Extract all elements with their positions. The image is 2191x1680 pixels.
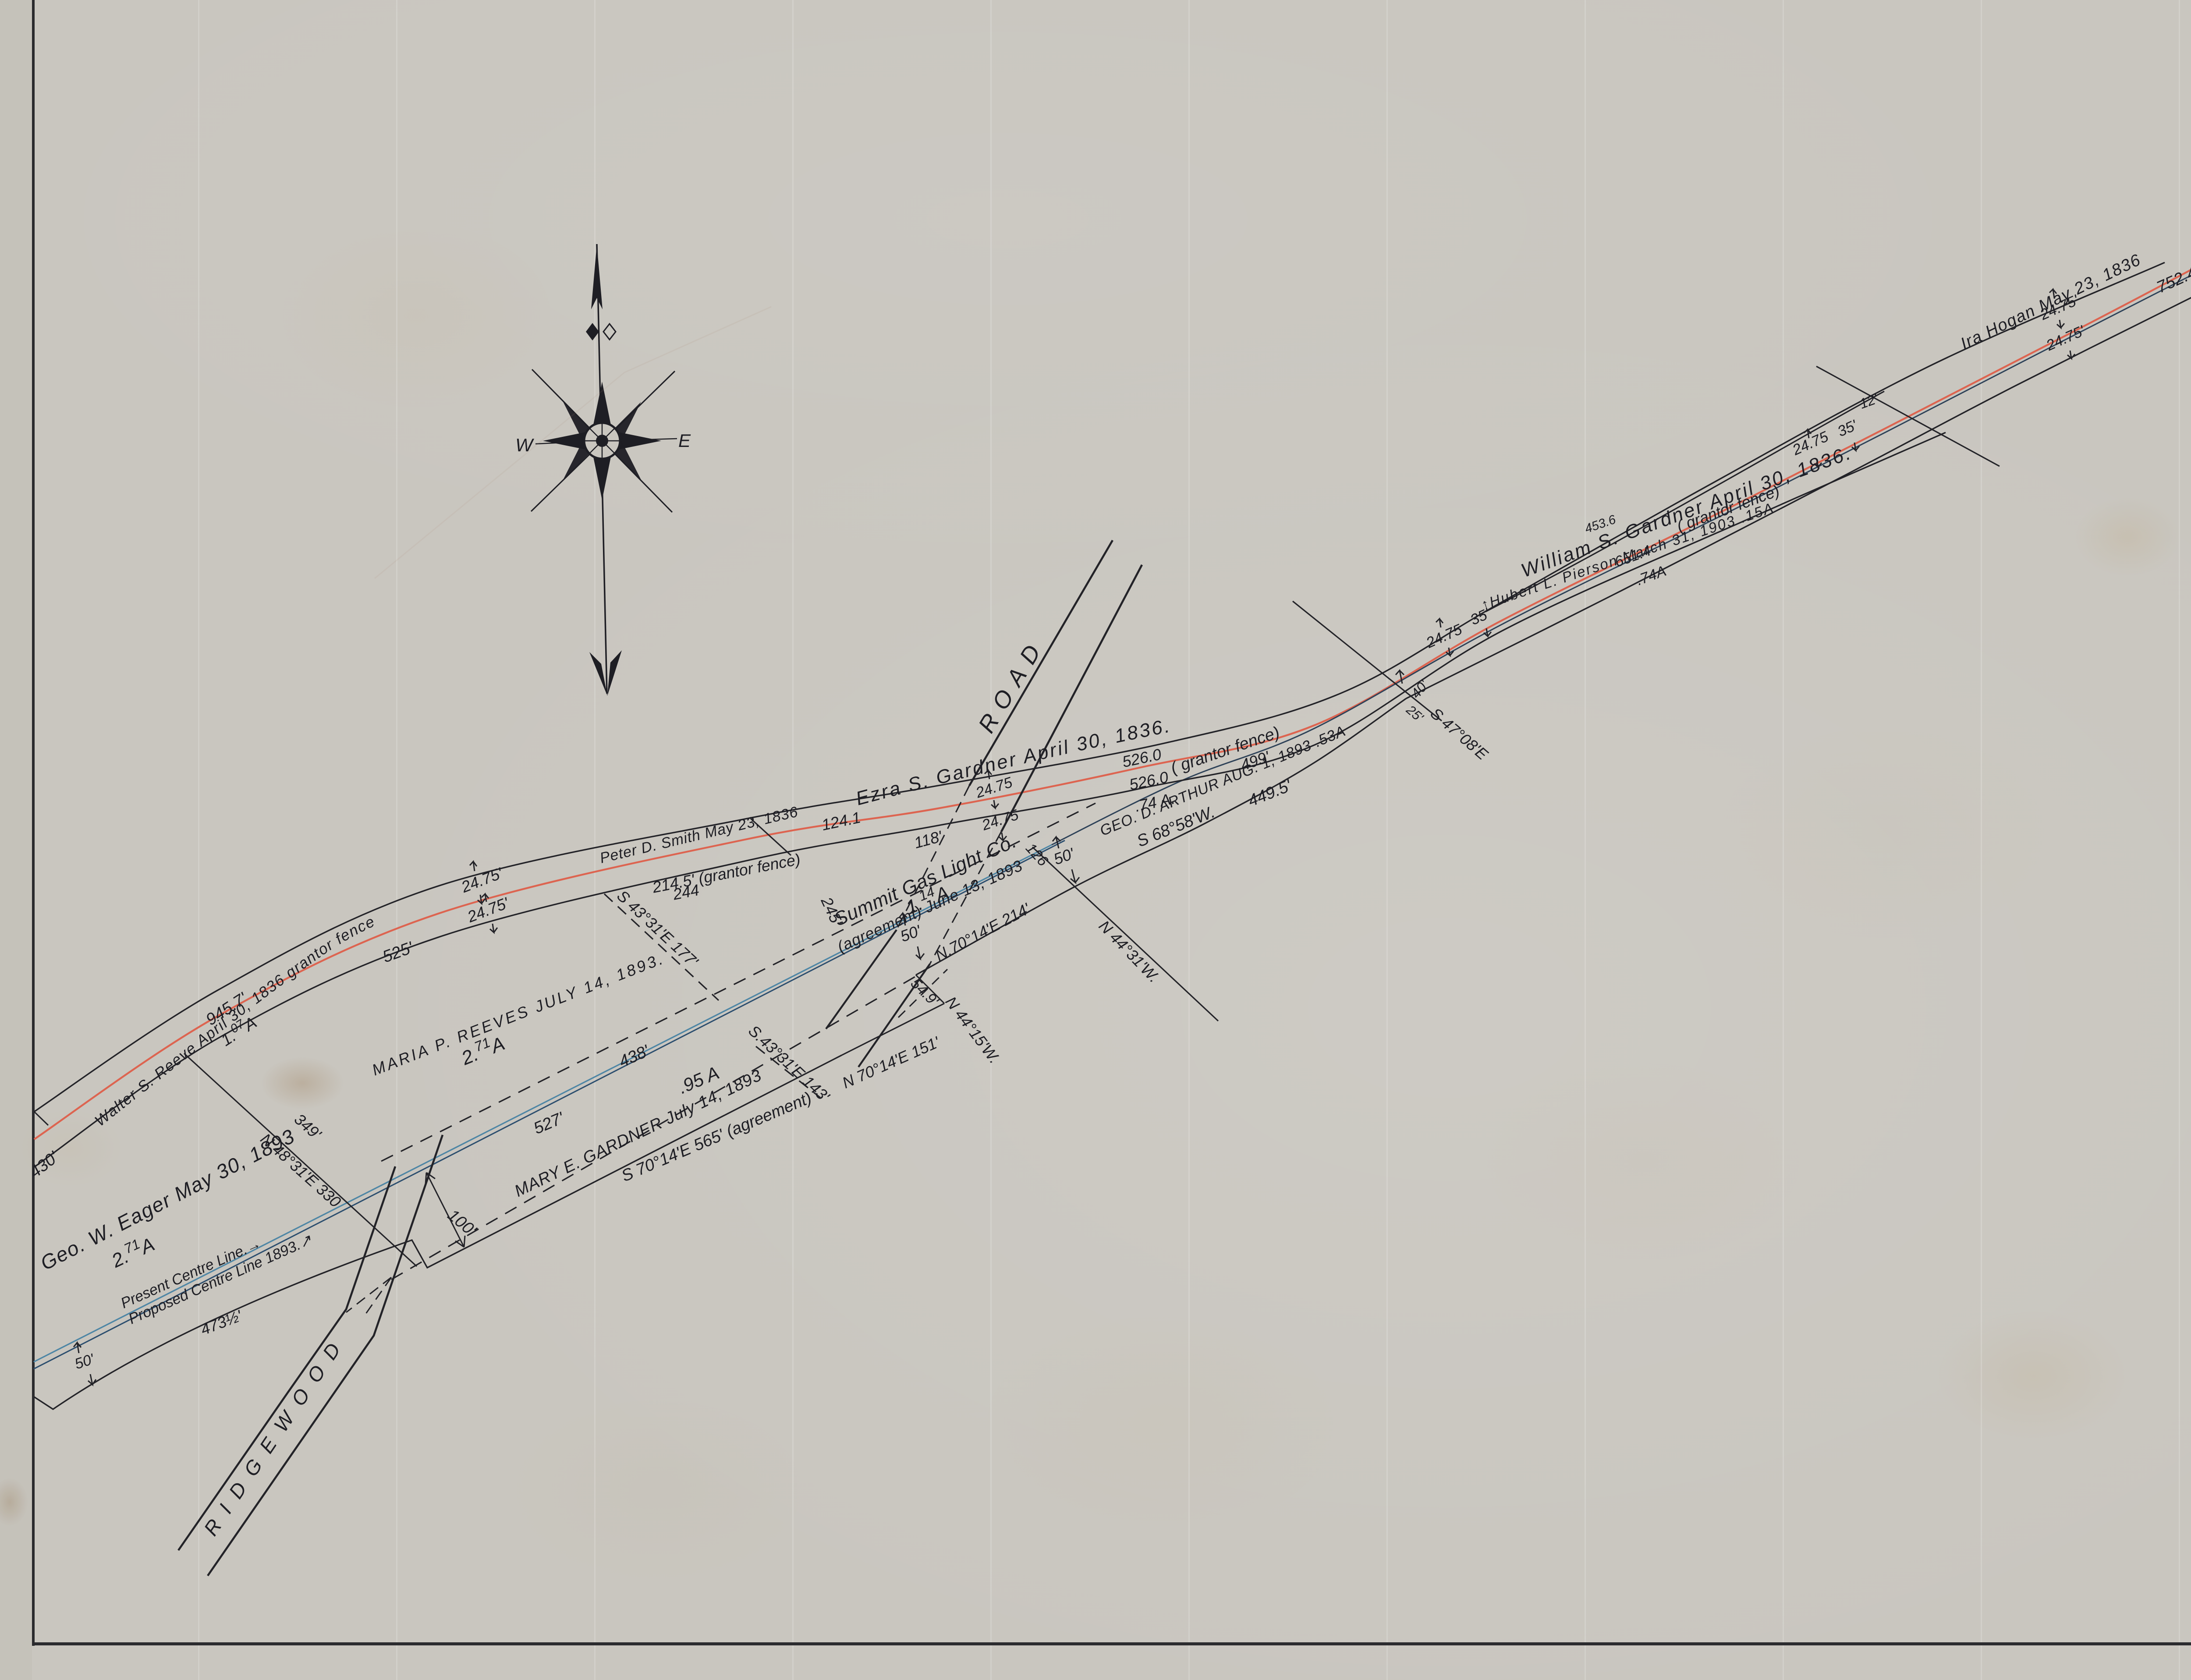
svg-text:E: E (678, 430, 691, 451)
svg-text:W: W (515, 435, 534, 455)
